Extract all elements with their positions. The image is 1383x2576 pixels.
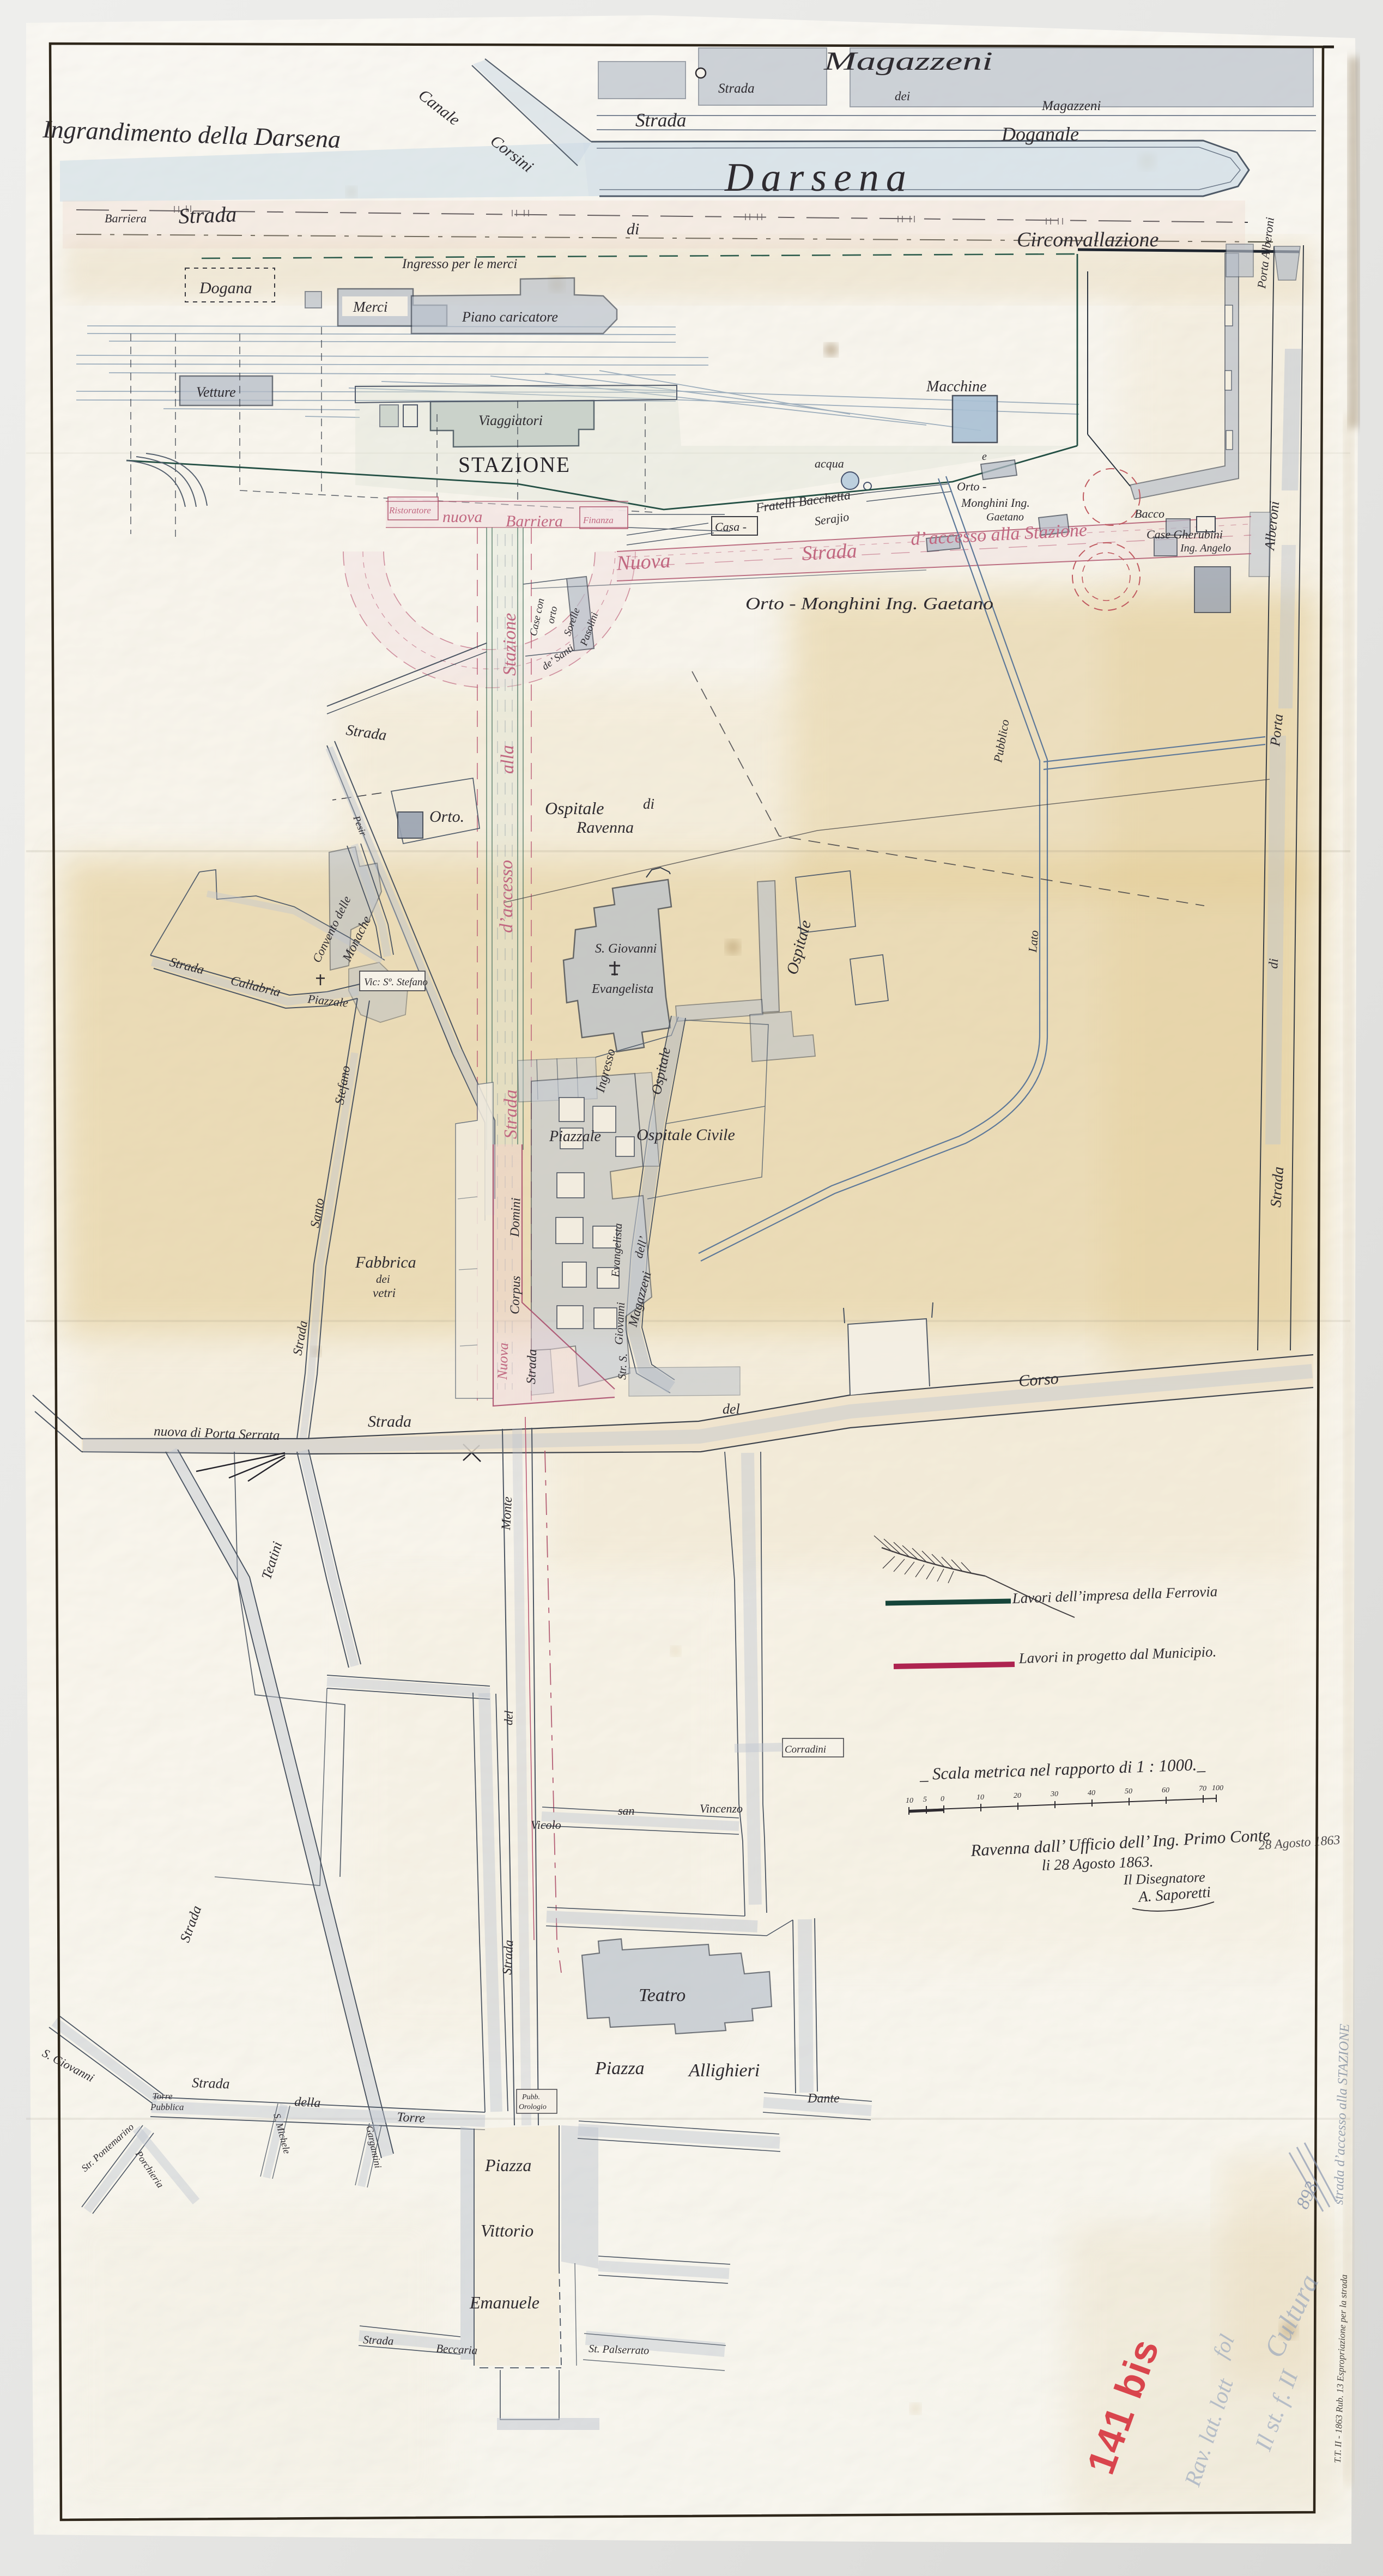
svg-text:Vic: Sº. Stefano: Vic: Sº. Stefano (364, 977, 428, 988)
svg-text:alla: alla (498, 745, 518, 774)
svg-text:Strada: Strada (368, 1413, 411, 1431)
svg-text:60: 60 (1162, 1786, 1169, 1795)
svg-text:Teatro: Teatro (639, 1985, 686, 2005)
svg-text:Strada: Strada (501, 1089, 521, 1139)
svg-text:Corso: Corso (1018, 1369, 1059, 1390)
svg-text:Dogana: Dogana (199, 279, 252, 297)
svg-text:Orto - Monghini Ing. Gaetano: Orto - Monghini Ing. Gaetano (745, 593, 993, 613)
svg-text:20: 20 (1014, 1792, 1021, 1800)
svg-text:Strada: Strada (718, 81, 755, 96)
svg-text:dei: dei (895, 89, 910, 103)
svg-text:S. Giovanni: S. Giovanni (595, 942, 657, 956)
svg-text:dei: dei (376, 1272, 390, 1286)
svg-text:Lato: Lato (1026, 930, 1041, 953)
svg-text:Giovanni: Giovanni (612, 1302, 627, 1345)
svg-text:Torre: Torre (153, 2091, 173, 2101)
svg-text:Gaetano: Gaetano (986, 511, 1024, 523)
svg-text:Monte: Monte (499, 1496, 515, 1531)
svg-text:Darsena: Darsena (724, 155, 913, 200)
svg-text:Ristoratore: Ristoratore (389, 505, 431, 516)
svg-text:Doganale: Doganale (1001, 123, 1079, 145)
svg-text:Pubblica: Pubblica (150, 2102, 184, 2112)
svg-text:10: 10 (906, 1797, 913, 1805)
svg-text:Ravenna: Ravenna (576, 819, 634, 837)
svg-text:Orto -: Orto - (957, 480, 986, 493)
svg-text:Case Gherubini: Case Gherubini (1147, 528, 1223, 541)
svg-text:Piazza: Piazza (484, 2155, 531, 2175)
svg-text:Strada: Strada (178, 202, 237, 228)
svg-text:40: 40 (1088, 1789, 1095, 1797)
svg-text:Finanza: Finanza (583, 515, 614, 525)
svg-text:St. Palserrato: St. Palserrato (589, 2343, 650, 2357)
svg-text:Emanuele: Emanuele (469, 2293, 539, 2312)
svg-text:Strada: Strada (192, 2075, 230, 2092)
svg-text:Vicolo: Vicolo (531, 1818, 561, 1832)
svg-text:Orologio: Orologio (519, 2103, 547, 2111)
svg-text:Corradini: Corradini (785, 1744, 826, 1755)
svg-text:Strada: Strada (801, 540, 857, 565)
svg-text:Strada: Strada (635, 110, 686, 131)
svg-text:100: 100 (1212, 1784, 1223, 1792)
svg-text:Ing. Angelo: Ing. Angelo (1180, 542, 1231, 554)
svg-text:Piazza: Piazza (595, 2058, 645, 2078)
svg-text:Viaggiatori: Viaggiatori (478, 413, 543, 428)
svg-text:Beccaria: Beccaria (436, 2342, 478, 2357)
svg-text:30: 30 (1050, 1790, 1058, 1798)
svg-text:Strada: Strada (363, 2333, 394, 2348)
svg-text:Nuova: Nuova (615, 549, 671, 575)
svg-text:di: di (627, 220, 639, 238)
svg-text:Piazzale: Piazzale (549, 1128, 601, 1145)
svg-text:Magazzeni: Magazzeni (823, 47, 993, 76)
svg-text:san: san (618, 1804, 635, 1817)
svg-text:della: della (294, 2095, 321, 2110)
svg-text:10: 10 (976, 1793, 984, 1802)
svg-text:Vetture: Vetture (196, 384, 236, 400)
svg-text:Dante: Dante (807, 2092, 840, 2106)
svg-text:Circonvallazione: Circonvallazione (1017, 228, 1158, 251)
svg-text:del: del (723, 1401, 740, 1417)
svg-text:Evangelista: Evangelista (591, 982, 653, 996)
svg-text:d’accesso: d’accesso (496, 860, 517, 933)
svg-text:e: e (982, 451, 987, 463)
svg-text:Barriera: Barriera (105, 211, 147, 225)
svg-text:Fabbrica: Fabbrica (355, 1253, 416, 1271)
svg-text:vetri: vetri (373, 1286, 396, 1300)
svg-text:Stazione: Stazione (500, 613, 520, 676)
svg-text:0: 0 (941, 1795, 944, 1803)
svg-text:Pubb.: Pubb. (521, 2093, 540, 2101)
svg-text:del: del (501, 1710, 515, 1725)
svg-text:Monghini Ing.: Monghini Ing. (961, 496, 1030, 510)
svg-text:Ospitale: Ospitale (545, 798, 604, 818)
svg-text:Vittorio: Vittorio (481, 2221, 533, 2240)
svg-text:Merci: Merci (353, 299, 387, 315)
svg-text:Ingresso per le merci: Ingresso per le merci (402, 257, 517, 271)
svg-text:Domini: Domini (508, 1197, 524, 1238)
svg-text:Strada: Strada (1267, 1166, 1287, 1208)
svg-text:50: 50 (1125, 1787, 1132, 1796)
svg-text:Str. S.: Str. S. (615, 1353, 630, 1380)
svg-text:Strada: Strada (524, 1349, 539, 1384)
svg-text:Orto.: Orto. (429, 808, 464, 826)
svg-text:70: 70 (1199, 1785, 1206, 1793)
svg-text:Magazzeni: Magazzeni (1041, 99, 1101, 113)
svg-text:Casa -: Casa - (715, 520, 747, 534)
svg-text:Corpus: Corpus (508, 1276, 523, 1315)
svg-text:Allighieri: Allighieri (688, 2060, 760, 2081)
svg-text:Nuova: Nuova (494, 1342, 511, 1380)
svg-text:Bacco: Bacco (1135, 507, 1164, 520)
svg-text:di: di (1266, 958, 1281, 969)
svg-text:Macchine: Macchine (926, 378, 986, 395)
svg-text:Piano caricatore: Piano caricatore (462, 309, 558, 325)
svg-text:Barriera: Barriera (506, 512, 563, 530)
svg-text:Vincenzo: Vincenzo (700, 1802, 743, 1815)
svg-text:Ospitale Civile: Ospitale Civile (636, 1126, 735, 1144)
svg-text:Torre: Torre (397, 2110, 426, 2126)
svg-text:Strada: Strada (500, 1939, 516, 1975)
svg-text:nuova: nuova (442, 508, 482, 526)
svg-text:acqua: acqua (815, 457, 844, 470)
svg-text:STAZIONE: STAZIONE (458, 452, 571, 477)
svg-text:di: di (643, 796, 654, 812)
svg-text:5: 5 (923, 1796, 927, 1804)
